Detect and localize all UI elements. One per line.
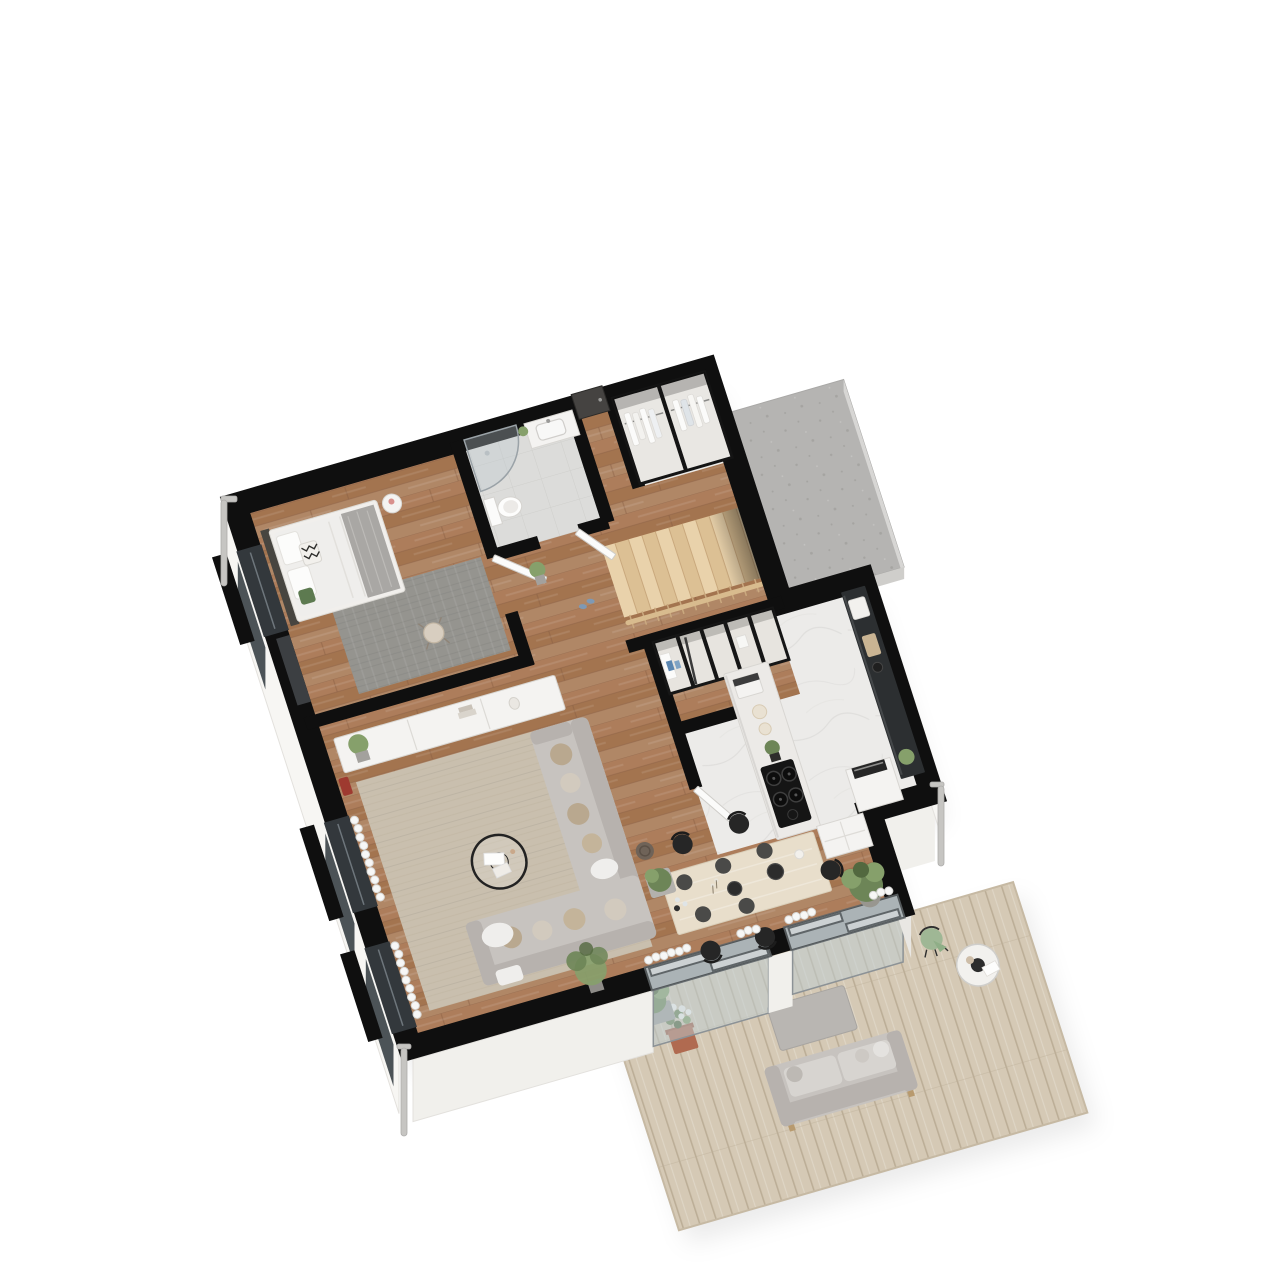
downspout-west <box>221 500 227 586</box>
downspout-southwest <box>401 1048 407 1136</box>
floor-plan-3d-render <box>0 0 1280 1280</box>
coffee-table-book <box>484 853 505 865</box>
canvas <box>0 0 1280 1280</box>
downspout-southeast <box>938 786 944 866</box>
